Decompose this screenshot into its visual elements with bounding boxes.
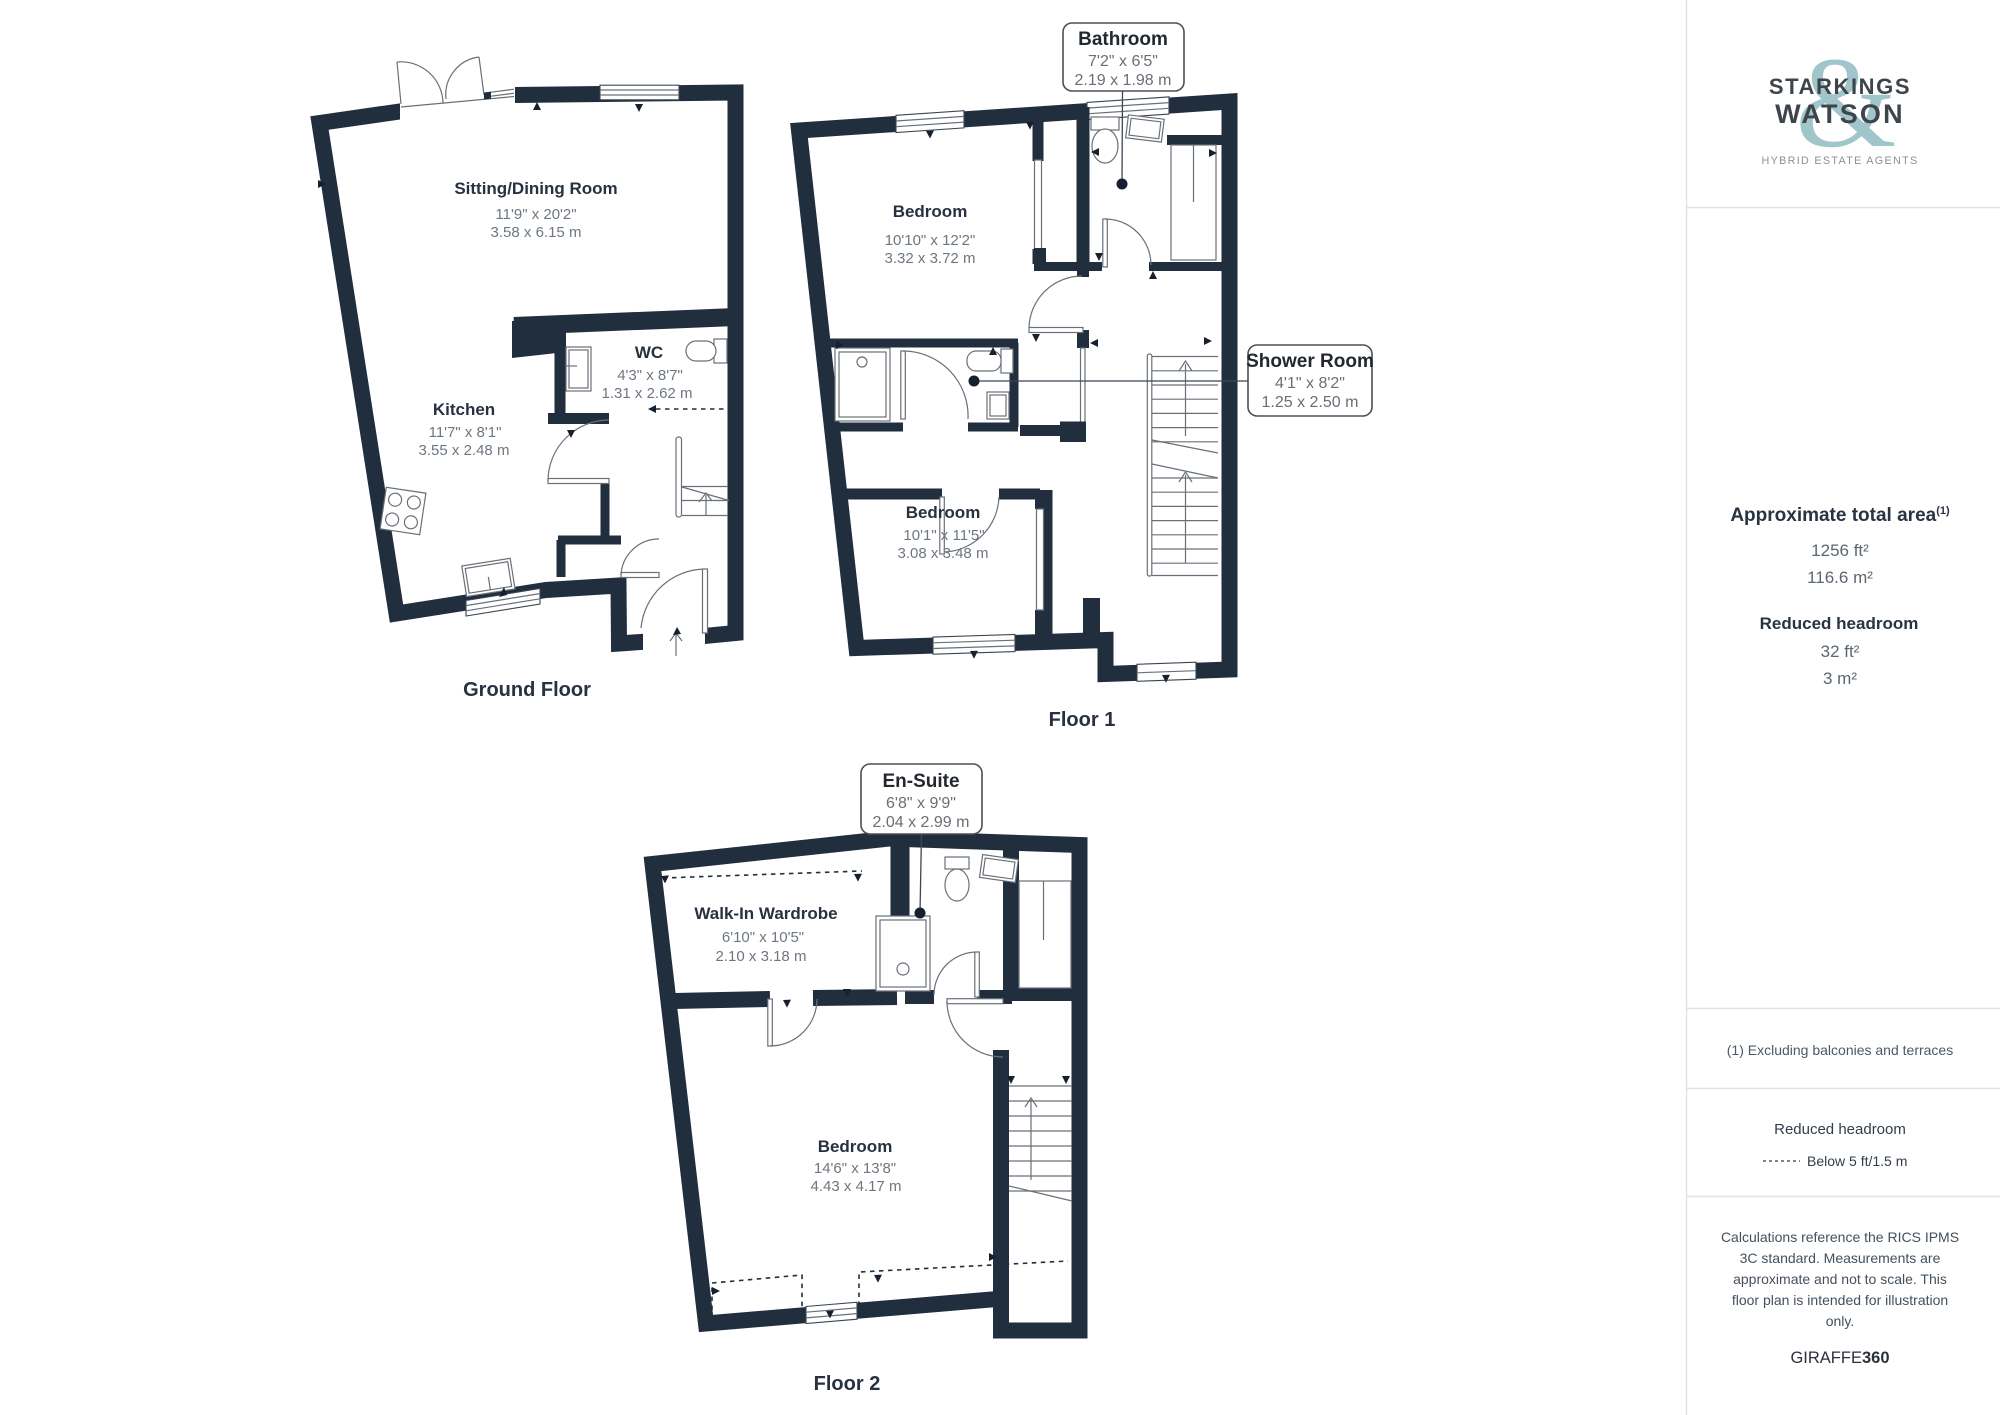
svg-text:Floor 1: Floor 1 [1049, 709, 1116, 731]
svg-text:2.19 x 1.98 m: 2.19 x 1.98 m [1075, 72, 1172, 89]
svg-text:(1) Excluding balconies and te: (1) Excluding balconies and terraces [1727, 1042, 1953, 1058]
svg-text:3.55 x 2.48 m: 3.55 x 2.48 m [419, 442, 510, 459]
svg-text:6'8" x 9'9": 6'8" x 9'9" [886, 795, 956, 812]
svg-text:GIRAFFE360: GIRAFFE360 [1790, 1349, 1889, 1367]
svg-text:Calculations reference the RIC: Calculations reference the RICS IPMS [1721, 1229, 1959, 1245]
svg-text:HYBRID ESTATE AGENTS: HYBRID ESTATE AGENTS [1762, 155, 1919, 167]
svg-text:2.10 x 3.18 m: 2.10 x 3.18 m [716, 948, 807, 965]
svg-text:Bedroom: Bedroom [906, 503, 981, 522]
svg-text:Reduced headroom: Reduced headroom [1760, 614, 1919, 633]
svg-text:2.04 x 2.99 m: 2.04 x 2.99 m [873, 814, 970, 831]
svg-text:1.25 x 2.50 m: 1.25 x 2.50 m [1262, 394, 1359, 411]
svg-text:3 m²: 3 m² [1823, 669, 1857, 688]
svg-text:7'2" x 6'5": 7'2" x 6'5" [1088, 53, 1158, 70]
svg-text:3C standard. Measurements are: 3C standard. Measurements are [1740, 1250, 1941, 1266]
svg-text:3.58 x 6.15 m: 3.58 x 6.15 m [491, 224, 582, 241]
svg-text:Shower Room: Shower Room [1246, 351, 1374, 372]
svg-text:STARKINGS: STARKINGS [1769, 74, 1911, 99]
svg-text:3.32 x 3.72 m: 3.32 x 3.72 m [885, 250, 976, 267]
svg-text:En-Suite: En-Suite [882, 771, 959, 792]
svg-text:10'10" x 12'2": 10'10" x 12'2" [885, 232, 976, 249]
svg-text:4'1" x 8'2": 4'1" x 8'2" [1275, 375, 1345, 392]
svg-text:Walk-In Wardrobe: Walk-In Wardrobe [694, 904, 837, 923]
svg-text:Below 5 ft/1.5 m: Below 5 ft/1.5 m [1807, 1153, 1907, 1169]
svg-text:Approximate total area(1): Approximate total area(1) [1730, 505, 1950, 526]
svg-text:4'3" x 8'7": 4'3" x 8'7" [617, 367, 683, 384]
svg-text:Bedroom: Bedroom [893, 202, 968, 221]
svg-text:Sitting/Dining Room: Sitting/Dining Room [454, 179, 617, 198]
svg-text:WC: WC [635, 343, 663, 362]
svg-text:floor plan is intended for ill: floor plan is intended for illustration [1732, 1292, 1948, 1308]
svg-text:10'1" x 11'5": 10'1" x 11'5" [903, 527, 984, 544]
svg-text:Bathroom: Bathroom [1078, 29, 1168, 50]
svg-text:Kitchen: Kitchen [433, 400, 495, 419]
svg-text:116.6 m²: 116.6 m² [1807, 568, 1873, 587]
svg-text:6'10" x 10'5": 6'10" x 10'5" [722, 929, 804, 946]
svg-text:1.31 x 2.62 m: 1.31 x 2.62 m [602, 385, 693, 402]
svg-text:1256 ft²: 1256 ft² [1811, 541, 1869, 560]
svg-text:Ground Floor: Ground Floor [463, 679, 591, 701]
svg-text:Reduced headroom: Reduced headroom [1774, 1121, 1906, 1138]
svg-text:4.43 x 4.17 m: 4.43 x 4.17 m [811, 1178, 902, 1195]
svg-text:14'6" x 13'8": 14'6" x 13'8" [814, 1160, 896, 1177]
svg-text:only.: only. [1826, 1313, 1855, 1329]
svg-text:approximate and not to scale.: approximate and not to scale. This [1733, 1271, 1947, 1287]
svg-text:3.08 x 3.48 m: 3.08 x 3.48 m [898, 545, 989, 562]
svg-text:32 ft²: 32 ft² [1821, 642, 1860, 661]
svg-text:11'7" x 8'1": 11'7" x 8'1" [429, 424, 502, 441]
svg-text:WATSON: WATSON [1775, 99, 1905, 129]
svg-text:Bedroom: Bedroom [818, 1137, 893, 1156]
svg-text:11'9" x 20'2": 11'9" x 20'2" [495, 206, 576, 223]
svg-text:Floor 2: Floor 2 [814, 1373, 881, 1395]
